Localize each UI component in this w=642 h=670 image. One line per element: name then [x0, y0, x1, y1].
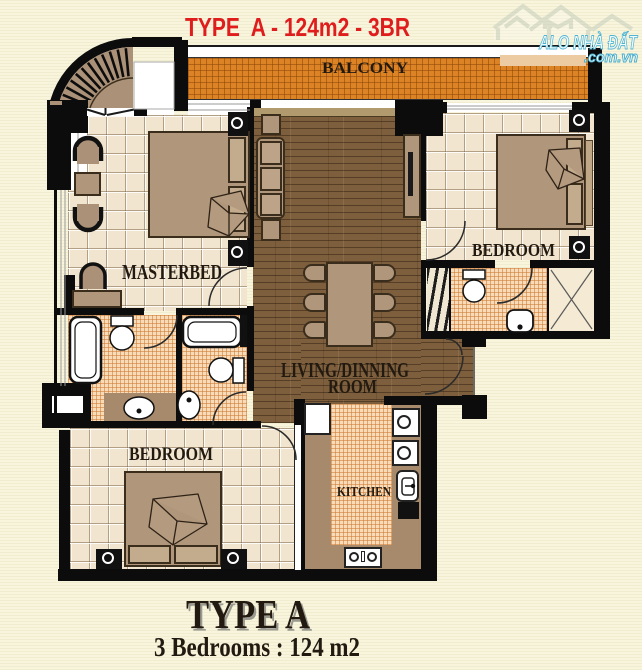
- svg-text:BEDROOM: BEDROOM: [129, 444, 213, 465]
- svg-text:3 Bedrooms : 124 m2: 3 Bedrooms : 124 m2: [154, 632, 360, 662]
- svg-text:MASTERBED: MASTERBED: [122, 260, 222, 284]
- svg-text:BALCONY: BALCONY: [322, 60, 408, 77]
- svg-text:KITCHEN: KITCHEN: [337, 484, 391, 499]
- svg-text:BEDROOM: BEDROOM: [472, 240, 555, 260]
- svg-text:ROOM: ROOM: [328, 376, 377, 398]
- svg-text:TYPE A: TYPE A: [186, 591, 310, 637]
